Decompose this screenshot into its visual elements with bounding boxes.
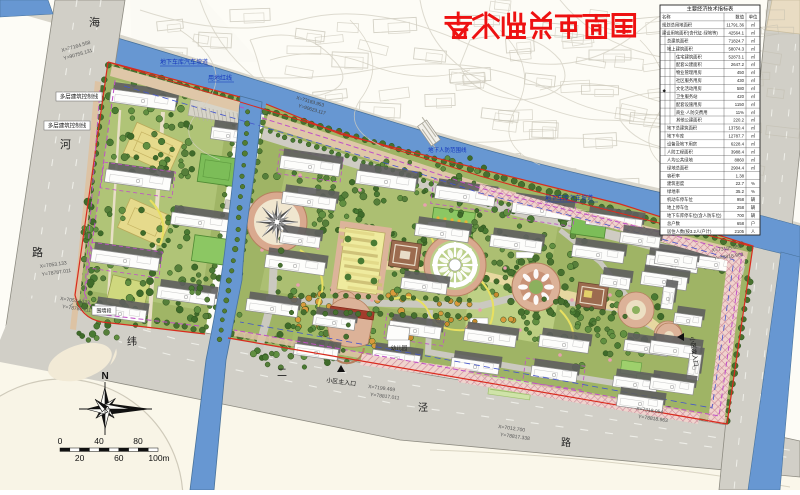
svg-text:绿地总面积: 绿地总面积: [667, 164, 689, 171]
svg-text:主要经济技术指标表: 主要经济技术指标表: [687, 5, 735, 13]
svg-text:建筑密度: 建筑密度: [667, 180, 685, 187]
svg-text:700: 700: [737, 213, 745, 218]
svg-text:设备及地下用房: 设备及地下用房: [667, 141, 697, 148]
svg-text:名称: 名称: [662, 14, 671, 21]
svg-text:社区服务用房: 社区服务用房: [676, 77, 702, 84]
svg-text:户: 户: [751, 220, 755, 227]
svg-text:220.2: 220.2: [733, 118, 744, 123]
svg-text:总户数: 总户数: [667, 220, 681, 227]
svg-text:多层建筑控制线: 多层建筑控制线: [48, 122, 87, 130]
svg-text:二: 二: [277, 368, 287, 379]
svg-text:N: N: [102, 371, 109, 382]
svg-text:◆: ◆: [663, 88, 667, 93]
svg-text:总建筑面积: 总建筑面积: [667, 37, 689, 44]
svg-text:12787.7: 12787.7: [728, 134, 744, 139]
svg-text:1150: 1150: [735, 102, 745, 107]
svg-text:35.2: 35.2: [736, 189, 745, 194]
svg-text:㎡: ㎡: [751, 45, 756, 51]
svg-text:0: 0: [58, 436, 63, 446]
svg-text:辆: 辆: [751, 204, 756, 211]
svg-text:其他公建面积: 其他公建面积: [676, 117, 702, 124]
svg-text:人防工程面积: 人防工程面积: [667, 148, 693, 155]
svg-text:纬: 纬: [127, 335, 137, 348]
svg-text:地下车库: 地下车库: [667, 133, 685, 140]
svg-text:住宅建筑面积: 住宅建筑面积: [676, 53, 702, 60]
svg-text:㎡: ㎡: [751, 101, 756, 107]
svg-text:㎡: ㎡: [751, 69, 756, 75]
svg-text:㎡: ㎡: [751, 148, 756, 154]
svg-text:430: 430: [737, 78, 745, 83]
svg-text:人均公共绿地: 人均公共绿地: [667, 156, 693, 163]
svg-text:20: 20: [75, 453, 85, 463]
svg-text:580: 580: [737, 86, 745, 91]
svg-text:地上停车位: 地上停车位: [667, 204, 689, 211]
svg-text:㎡: ㎡: [751, 22, 756, 28]
svg-text:㎡: ㎡: [751, 37, 756, 43]
svg-text:数值: 数值: [735, 14, 744, 21]
svg-text:地下人防范围线: 地下人防范围线: [428, 146, 467, 154]
svg-text:卫生服务站: 卫生服务站: [676, 93, 698, 100]
svg-text:海: 海: [89, 15, 100, 29]
svg-text:㎡: ㎡: [751, 125, 756, 131]
svg-text:%: %: [751, 189, 755, 194]
svg-text:6228.4: 6228.4: [731, 142, 745, 147]
svg-text:11791.36: 11791.36: [726, 23, 744, 28]
svg-text:8860: 8860: [734, 157, 744, 162]
svg-text:围墙段: 围墙段: [96, 308, 111, 315]
svg-text:物业管理用房: 物业管理用房: [676, 69, 702, 76]
svg-text:420: 420: [737, 94, 745, 99]
svg-text:㎡: ㎡: [751, 93, 756, 99]
svg-text:22.7: 22.7: [736, 181, 745, 186]
svg-text:2904.4: 2904.4: [731, 165, 745, 170]
svg-text:㎡: ㎡: [751, 141, 756, 147]
svg-text:容积率: 容积率: [667, 172, 681, 179]
svg-text:地下车库停车位(含人防车位): 地下车库停车位(含人防车位): [667, 212, 722, 219]
svg-text:52873.1: 52873.1: [728, 54, 744, 59]
svg-text:商业·人防交费用: 商业·人防交费用: [676, 109, 708, 116]
svg-text:㎡: ㎡: [751, 53, 756, 59]
svg-text:泾: 泾: [418, 401, 428, 414]
svg-text:958: 958: [737, 197, 745, 202]
svg-text:%: %: [751, 181, 755, 186]
svg-text:58074.3: 58074.3: [728, 46, 744, 51]
svg-text:100m: 100m: [148, 453, 169, 463]
svg-text:机动车停车位: 机动车停车位: [667, 196, 693, 203]
svg-text:㎡: ㎡: [751, 133, 756, 139]
svg-text:地下总建筑面积: 地下总建筑面积: [667, 125, 698, 132]
svg-text:配套公建面积: 配套公建面积: [676, 61, 702, 68]
svg-text:2647.2: 2647.2: [731, 62, 745, 67]
svg-text:文化活动用房: 文化活动用房: [676, 85, 702, 92]
svg-text:地下车库汽车坡道: 地下车库汽车坡道: [160, 58, 208, 66]
svg-text:建设用地面积(含代征·绿地等): 建设用地面积(含代征·绿地等): [662, 30, 718, 37]
svg-text:258: 258: [737, 205, 745, 210]
svg-text:11%: 11%: [736, 110, 744, 115]
svg-text:多层建筑控制线: 多层建筑控制线: [60, 93, 99, 101]
svg-text:㎡: ㎡: [751, 117, 756, 123]
svg-text:40: 40: [94, 436, 104, 446]
svg-text:13750.4: 13750.4: [728, 126, 744, 131]
svg-text:450: 450: [737, 70, 745, 75]
svg-text:1.38: 1.38: [736, 173, 745, 178]
svg-text:路: 路: [32, 246, 43, 259]
svg-text:658: 658: [737, 221, 745, 226]
svg-text:㎡: ㎡: [751, 85, 756, 91]
svg-text:用地红线: 用地红线: [208, 74, 232, 82]
svg-text:3988.4: 3988.4: [731, 149, 745, 154]
svg-text:配套设施用房: 配套设施用房: [676, 101, 702, 108]
svg-text:辆: 辆: [751, 196, 756, 203]
svg-text:71824.7: 71824.7: [728, 38, 744, 43]
svg-text:㎡: ㎡: [751, 77, 756, 83]
svg-text:42564.1: 42564.1: [728, 31, 744, 36]
svg-text:60: 60: [114, 453, 124, 463]
svg-text:80: 80: [133, 436, 143, 446]
svg-text:㎡: ㎡: [751, 156, 756, 162]
svg-text:居住人数(按3.2人/户计): 居住人数(按3.2人/户计): [667, 228, 712, 235]
svg-text:路: 路: [561, 436, 571, 449]
svg-text:单位: 单位: [749, 14, 758, 21]
svg-text:河: 河: [60, 138, 71, 151]
svg-text:㎡: ㎡: [751, 109, 756, 115]
svg-text:2105: 2105: [734, 229, 744, 234]
svg-text:地下车库汽车坡道: 地下车库汽车坡道: [545, 194, 593, 202]
svg-text:㎡: ㎡: [751, 61, 756, 67]
svg-text:人: 人: [751, 229, 756, 234]
svg-text:㎡: ㎡: [751, 30, 756, 36]
svg-text:绿地率: 绿地率: [667, 188, 681, 195]
svg-text:辆: 辆: [751, 212, 756, 219]
svg-text:㎡: ㎡: [751, 164, 756, 170]
svg-text:地上建筑面积: 地上建筑面积: [667, 45, 693, 52]
svg-text:规划总用地面积: 规划总用地面积: [662, 22, 693, 29]
